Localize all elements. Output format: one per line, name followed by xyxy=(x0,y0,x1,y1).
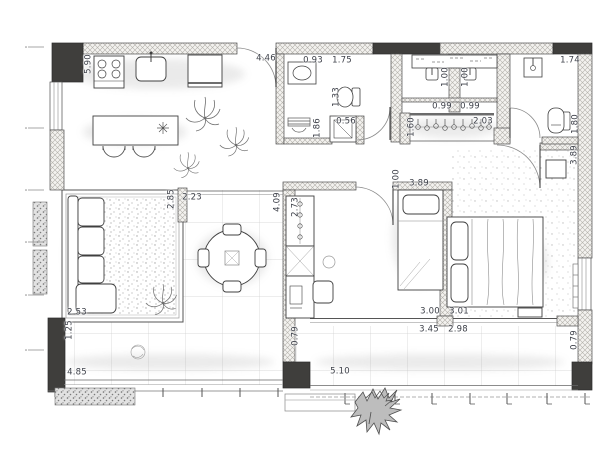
window-right xyxy=(578,258,591,310)
single-bed xyxy=(398,190,443,290)
plant-icon xyxy=(174,152,200,178)
dining-chair xyxy=(223,224,241,235)
column xyxy=(553,43,592,54)
vanity-sink xyxy=(288,62,316,84)
window-left xyxy=(50,82,62,130)
pouf xyxy=(323,256,335,268)
wall-right xyxy=(578,54,592,258)
dining-chair xyxy=(255,249,266,267)
column-terrace xyxy=(283,362,310,388)
bathroom-2 xyxy=(524,58,570,133)
plant-icon xyxy=(220,127,249,156)
nightstand xyxy=(546,160,566,178)
bench xyxy=(518,308,542,317)
plant-icon xyxy=(186,97,220,131)
floor-plan-drawing xyxy=(0,0,615,451)
hedge-planter xyxy=(33,202,47,246)
washbasin xyxy=(524,58,542,77)
dining-chair xyxy=(198,249,209,267)
storage-unit xyxy=(286,246,314,276)
hedge-planter xyxy=(55,388,135,405)
column-bottom-left xyxy=(48,318,65,392)
dining-chair xyxy=(223,281,241,292)
laundry-sink xyxy=(464,68,476,80)
laundry-sink xyxy=(426,68,438,80)
shower xyxy=(330,116,356,142)
toilet xyxy=(548,108,570,133)
desk xyxy=(286,276,314,318)
bar-stool xyxy=(133,146,155,157)
column-top-left xyxy=(52,43,83,82)
desk-chair xyxy=(313,281,333,303)
survey-ticks xyxy=(25,46,44,351)
balcony-plant xyxy=(351,388,401,434)
bedroom-1-door xyxy=(355,187,393,225)
bedroom1-wardrobe xyxy=(286,196,314,246)
bathroom-2-door xyxy=(510,108,540,138)
double-bed xyxy=(447,217,543,307)
bedroom-1 xyxy=(286,190,443,318)
bathroom-1 xyxy=(288,62,360,142)
hedge-planter xyxy=(33,250,47,294)
column xyxy=(373,43,440,54)
dining-table xyxy=(204,230,260,286)
bar-stool xyxy=(103,146,125,157)
towel-radiator xyxy=(288,118,310,132)
kitchen-sink xyxy=(136,52,166,82)
toilet xyxy=(337,87,360,107)
wall-top xyxy=(83,43,237,54)
floor-plan-sheet: 5.904.460.931.751.741.001.001.330.990.99… xyxy=(0,0,615,451)
kitchen-island xyxy=(93,116,178,145)
radiator xyxy=(573,264,578,308)
cooktop xyxy=(94,56,124,88)
fridge xyxy=(188,55,222,87)
laundry-counter xyxy=(412,55,497,68)
entry-door xyxy=(237,48,276,87)
